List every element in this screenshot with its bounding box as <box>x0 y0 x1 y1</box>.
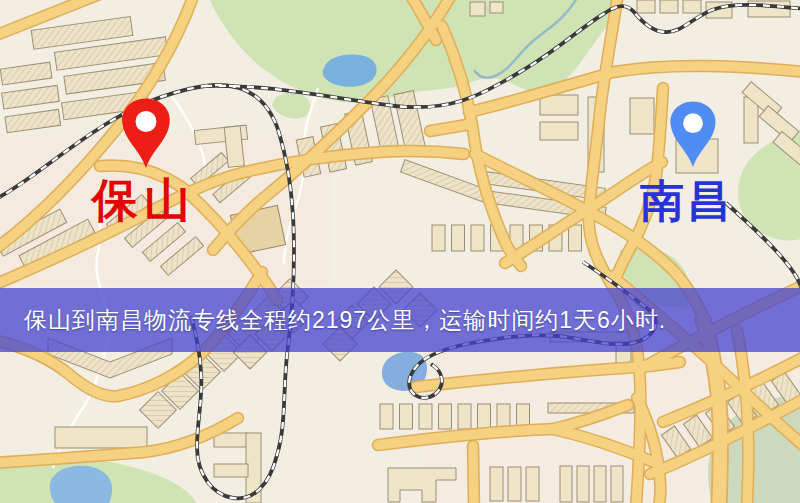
destination-label: 南昌 <box>640 179 734 223</box>
route-banner: 保山到南昌物流专线全程约2197公里，运输时间约1天6小时. <box>0 288 800 352</box>
destination-pin-icon[interactable] <box>668 100 718 169</box>
map: 保山 南昌 保山到南昌物流专线全程约2197公里，运输时间约1天6小时. <box>0 0 800 503</box>
map-background <box>0 0 800 503</box>
origin-label: 保山 <box>92 178 196 224</box>
origin-pin-icon[interactable] <box>120 97 172 170</box>
route-banner-text: 保山到南昌物流专线全程约2197公里，运输时间约1天6小时. <box>24 305 666 336</box>
